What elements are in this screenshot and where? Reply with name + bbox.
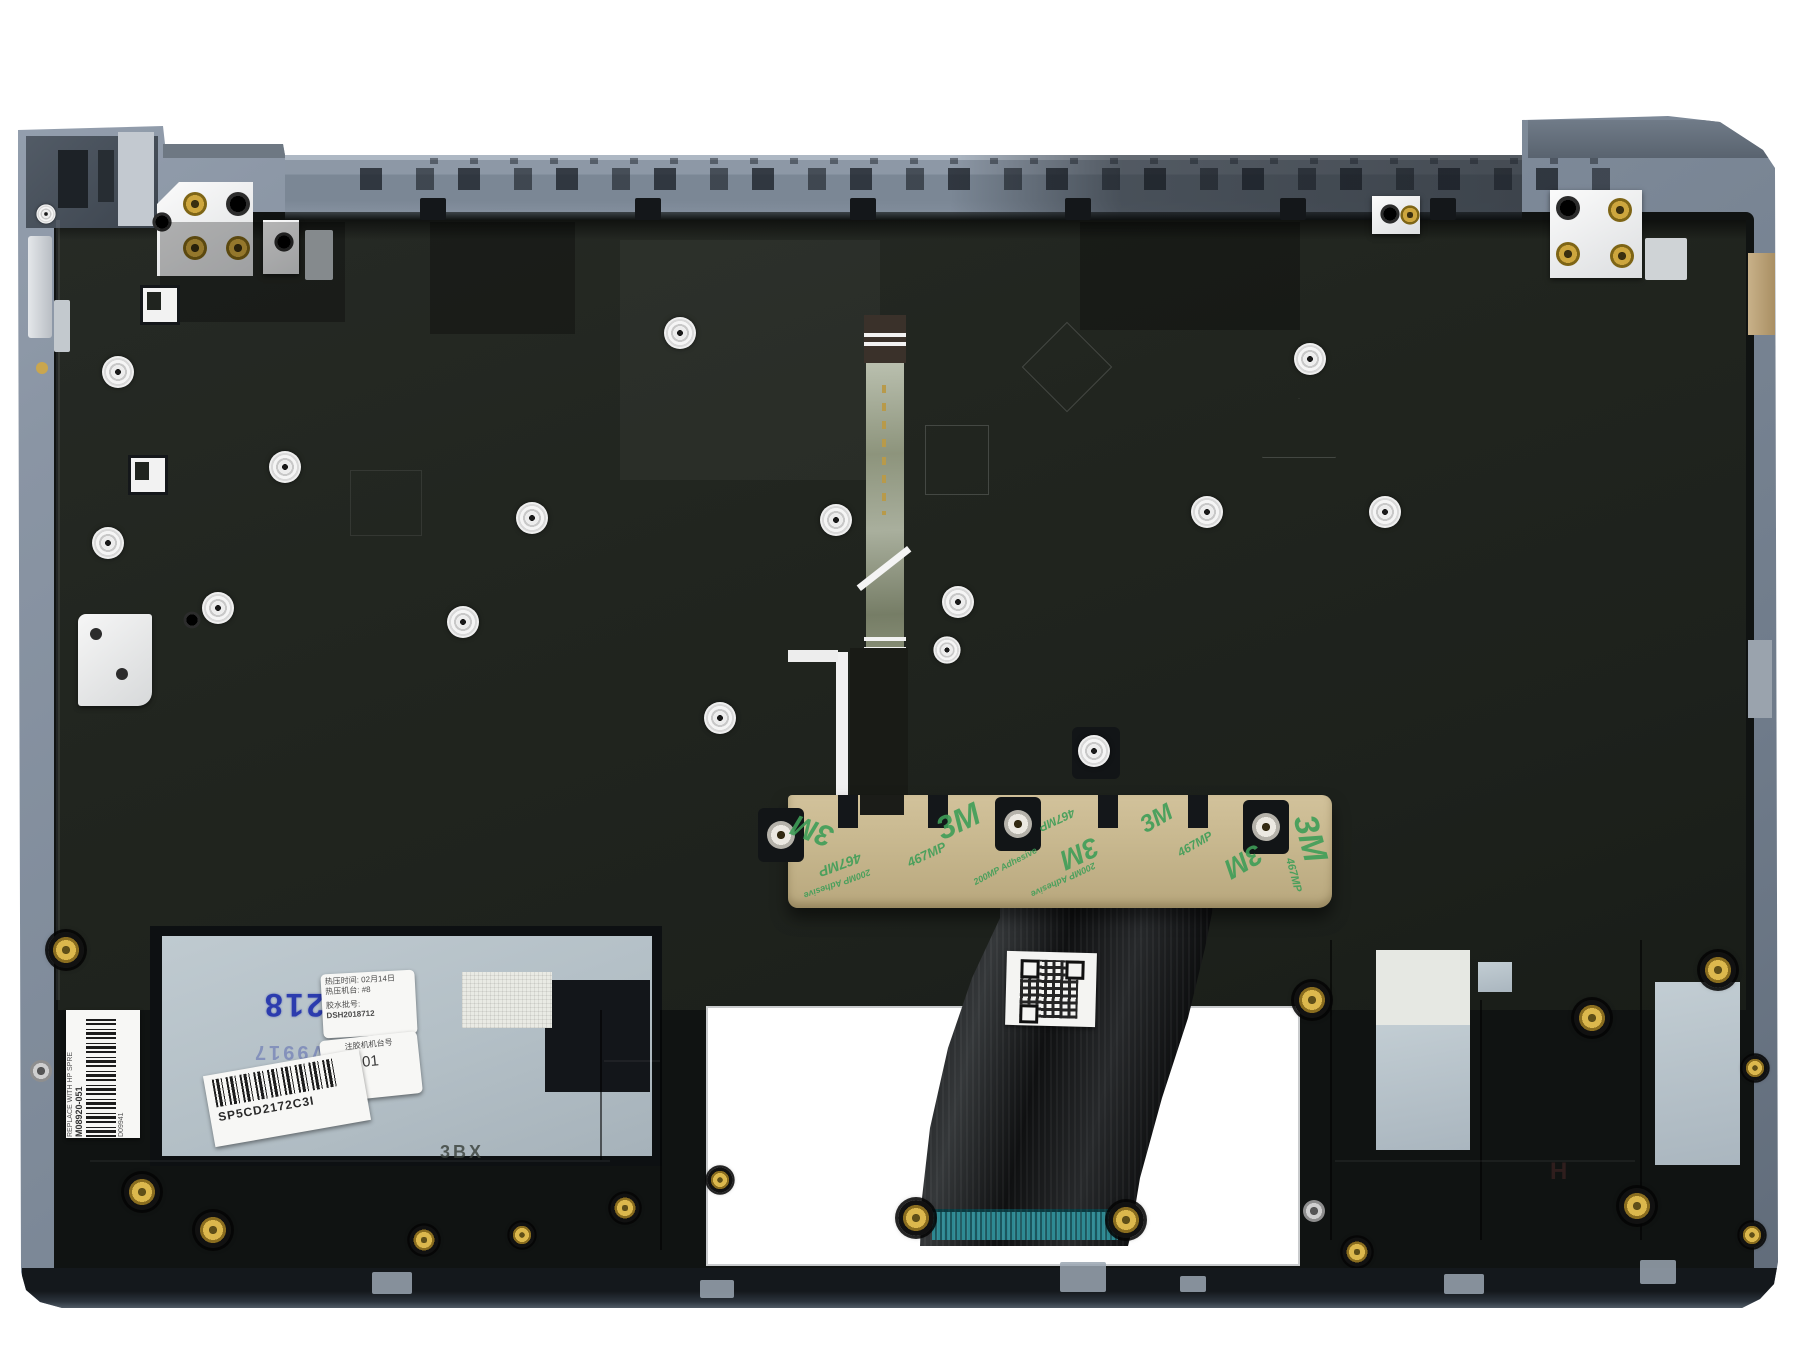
brass-standoff (707, 1167, 732, 1192)
screw-grommet (1004, 810, 1032, 838)
screw-boss (995, 797, 1041, 851)
top-edge-step (163, 144, 285, 158)
tape-print-3m: 3M (1135, 799, 1178, 840)
screw-grommet (102, 356, 134, 388)
molded-rib (90, 1160, 610, 1162)
hinge-corner-right (1528, 120, 1772, 158)
ribbon-pass-through (860, 795, 904, 815)
screw-grommet (664, 317, 696, 349)
silver-screw (1303, 1200, 1325, 1222)
screw-grommet (1252, 813, 1280, 841)
backlight-ribbon-cable (866, 315, 904, 663)
embossed-h-mark: H (1550, 1158, 1567, 1186)
ribbon-stripe (864, 333, 906, 337)
brass-standoff (195, 1212, 231, 1248)
tape-notch (1188, 795, 1208, 828)
ribbon-stripe (864, 342, 906, 346)
etched-square (925, 425, 989, 495)
brass-standoff (48, 932, 84, 968)
brass-standoff (898, 1200, 934, 1236)
left-latch-bracket-small (54, 300, 70, 352)
brass-insert (1400, 205, 1419, 224)
rail-bracket (1180, 1276, 1206, 1292)
hinge-slot (58, 150, 88, 208)
screw-grommet (36, 204, 55, 223)
hinge-slot (98, 150, 114, 202)
screw-hole (1556, 196, 1580, 220)
screw-grommet (820, 504, 852, 536)
qr-finder (1020, 959, 1039, 978)
rail-bracket (1444, 1274, 1484, 1294)
keyboard-cutout-window (140, 285, 180, 325)
brass-standoff (1108, 1202, 1144, 1238)
screw-grommet (1294, 343, 1326, 375)
ribbon-traces (882, 385, 886, 515)
tape-print-adhesive: 200MP Adhesive (972, 845, 1039, 887)
right-rim-brass-block (1748, 253, 1775, 335)
brass-standoff (1294, 982, 1330, 1018)
brass-insert (1556, 242, 1580, 266)
screw-grommet (1191, 496, 1223, 528)
ribbon-stiffener (864, 315, 906, 363)
tape-notch (838, 795, 858, 828)
insulator-patch (1655, 982, 1740, 1165)
brass-standoff (611, 1194, 640, 1223)
screw-grommet (704, 702, 736, 734)
screw-grommet (1078, 735, 1110, 767)
molded-rib (660, 1010, 662, 1250)
vent-ticks (430, 158, 1620, 164)
mount-tab (420, 198, 446, 220)
rail-bracket (700, 1280, 734, 1298)
mount-tab (1065, 198, 1091, 220)
right-rim-grey-block (1748, 640, 1772, 718)
mount-tab (1280, 198, 1306, 220)
white-bracket-left (78, 614, 152, 706)
mount-tab (850, 198, 876, 220)
ribbon-white-tab (788, 650, 838, 662)
brass-standoff (1343, 1238, 1372, 1267)
brass-insert (183, 192, 207, 216)
screw-grommet (942, 586, 974, 618)
ribbon-stripe (864, 637, 906, 641)
plate-sheen (620, 240, 880, 480)
palmrest-chassis: 3M 467MP 200MP Adhesive 3M 467MP 200MP A… (0, 0, 1800, 1350)
brass-standoff (410, 1226, 439, 1255)
hp-spare-label-content: REPLACE WITH HP SPRE M08920-051 D09941 (67, 1011, 139, 1137)
hp-spare-line1: REPLACE WITH HP SPRE (67, 1011, 74, 1137)
screw-grommet (269, 451, 301, 483)
brass-standoff (1739, 1222, 1764, 1247)
screw-grommet (447, 606, 479, 638)
plate-patch (160, 222, 345, 322)
hp-spare-serial: D09941 (118, 1011, 125, 1137)
screw-grommet (202, 592, 234, 624)
molded-rib (1330, 940, 1332, 1240)
touchpad-black-patch (545, 980, 650, 1092)
insulator-patch-small (1478, 962, 1512, 992)
tape-print-467mp: 467MP (1037, 806, 1077, 835)
molded-rib (604, 1060, 660, 1062)
mount-tab (635, 198, 661, 220)
mount-tab (1430, 198, 1456, 220)
process-label: 热压时间: 02月14日 热压机台: #8 胶水批号: DSH2018712 (320, 970, 417, 1039)
brass-standoff (1619, 1188, 1655, 1224)
rail-bracket (1060, 1262, 1106, 1292)
vent-slots (360, 168, 1620, 190)
plate-patch (430, 222, 575, 334)
molded-rib (1480, 1000, 1482, 1240)
brass-standoff (124, 1174, 160, 1210)
brass-standoff (1742, 1055, 1767, 1080)
etched-square (350, 470, 422, 536)
screw-hole (1380, 204, 1399, 223)
insulator-patch (1376, 1025, 1470, 1150)
screw-grommet (92, 527, 124, 559)
screw-hole (90, 628, 102, 640)
brass-standoff (1700, 952, 1736, 988)
brass-insert (1610, 244, 1634, 268)
product-photo-laptop-palmrest: 3M 467MP 200MP Adhesive 3M 467MP 200MP A… (0, 0, 1800, 1350)
silver-screw (30, 1060, 52, 1082)
plate-patch (1080, 222, 1300, 330)
tape-print-467mp: 467MP (1175, 828, 1215, 859)
brass-standoff (509, 1222, 534, 1247)
rail-bracket (1640, 1260, 1676, 1284)
embossed-mold-mark: 3BX (440, 1142, 484, 1163)
ribbon-lower-segment (850, 648, 908, 800)
hp-spare-label: REPLACE WITH HP SPRE M08920-051 D09941 (66, 1010, 140, 1138)
3m-adhesive-strip: 3M 467MP 200MP Adhesive 3M 467MP 200MP A… (788, 795, 1332, 908)
brass-standoff (1574, 1000, 1610, 1036)
mesh-sticker (462, 972, 552, 1028)
left-latch-bracket (28, 236, 52, 338)
tape-notch (1098, 795, 1118, 828)
hinge-corner-left-face (118, 132, 154, 226)
screw-hole (116, 668, 128, 680)
qr-label (1005, 951, 1097, 1027)
molded-rib (1335, 1160, 1635, 1162)
molded-rib (600, 1010, 602, 1160)
hp-spare-line2: M08920-051 (74, 1011, 84, 1137)
rail-bracket (372, 1272, 412, 1294)
barcode (86, 1019, 116, 1137)
tape-print-467mp: 467MP (905, 839, 949, 870)
ribbon-white-edge (836, 652, 848, 800)
screw-grommet (933, 636, 960, 663)
insulator-patch (1376, 950, 1470, 1028)
screw-grommet (1369, 496, 1401, 528)
metal-block (1645, 238, 1687, 280)
screw-grommet (516, 502, 548, 534)
screw-hole (184, 612, 201, 629)
brass-insert (1608, 198, 1632, 222)
brass-pin (36, 362, 48, 374)
bottom-rail (22, 1268, 1778, 1310)
screw-hole (226, 192, 250, 216)
ribbon-connector-teal (932, 1212, 1118, 1240)
qr-finder (1019, 1004, 1038, 1023)
keyboard-cutout-window (128, 455, 168, 495)
qr-finder (1065, 960, 1084, 979)
